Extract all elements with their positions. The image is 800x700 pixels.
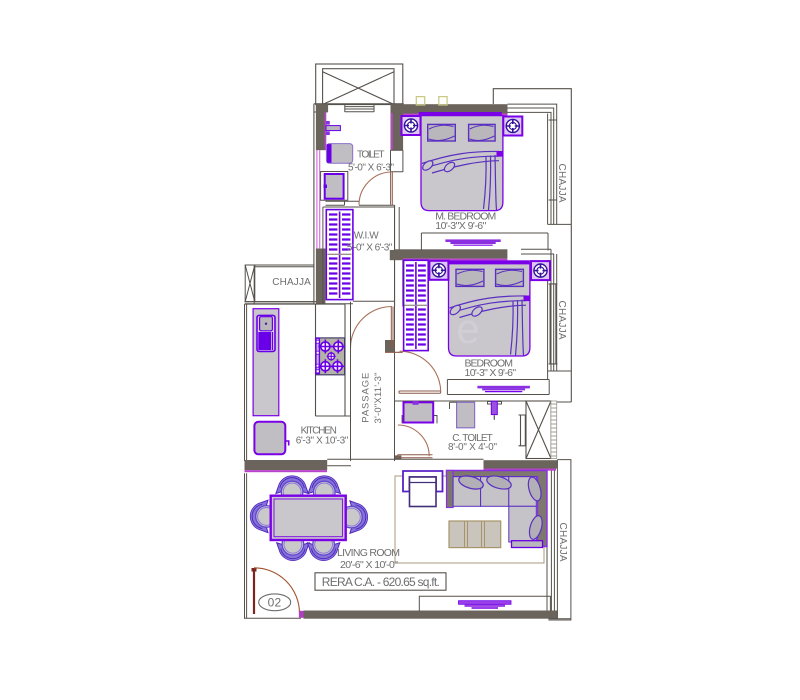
svg-text:CHAJJA: CHAJJA bbox=[557, 523, 568, 562]
svg-text:6'-3" X 10'-3": 6'-3" X 10'-3" bbox=[296, 436, 349, 447]
svg-text:02: 02 bbox=[268, 595, 282, 609]
svg-text:e: e bbox=[456, 305, 479, 352]
svg-text:10'-3" X 9'-6": 10'-3" X 9'-6" bbox=[465, 367, 517, 379]
svg-text:PASSAGE: PASSAGE bbox=[361, 373, 372, 423]
svg-text:LIVING ROOM: LIVING ROOM bbox=[337, 547, 400, 559]
svg-text:5'-0" X 6'-3": 5'-0" X 6'-3" bbox=[347, 243, 393, 254]
svg-text:5'-0" X 6'-3": 5'-0" X 6'-3" bbox=[348, 163, 394, 174]
svg-text:CHAJJA: CHAJJA bbox=[556, 301, 567, 340]
svg-text:8'-0" X 4'-0": 8'-0" X 4'-0" bbox=[448, 442, 497, 453]
svg-text:RERA C.A. - 620.65 sq.ft.: RERA C.A. - 620.65 sq.ft. bbox=[322, 575, 440, 589]
svg-text:20'-6" X 10'-0": 20'-6" X 10'-0" bbox=[340, 559, 398, 571]
svg-text:CHAJJA: CHAJJA bbox=[556, 164, 567, 203]
svg-text:W.I.W: W.I.W bbox=[354, 230, 380, 241]
svg-text:TOILET: TOILET bbox=[357, 150, 385, 161]
svg-text:3'-0"X11'-3": 3'-0"X11'-3" bbox=[373, 373, 384, 424]
svg-text:CHAJJA: CHAJJA bbox=[272, 277, 311, 288]
svg-text:10'-3"X 9'-6": 10'-3"X 9'-6" bbox=[435, 220, 486, 232]
